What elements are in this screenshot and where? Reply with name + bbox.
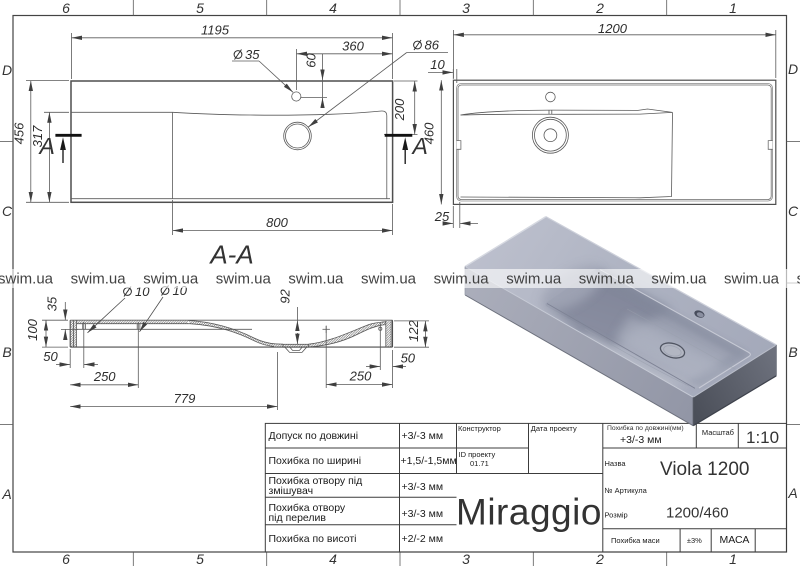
svg-text:Похибка по ширині: Похибка по ширині: [269, 455, 362, 467]
svg-text:122: 122: [406, 319, 421, 341]
svg-text:+2/-2 мм: +2/-2 мм: [402, 533, 444, 545]
svg-text:92: 92: [278, 289, 293, 304]
svg-text:swim.ua: swim.ua: [506, 271, 562, 288]
svg-text:Viola 1200: Viola 1200: [660, 459, 749, 480]
svg-text:A-A: A-A: [208, 240, 253, 270]
svg-text:35: 35: [45, 296, 60, 311]
svg-text:250: 250: [93, 369, 116, 384]
svg-text:2: 2: [595, 551, 604, 566]
svg-text:1: 1: [729, 0, 737, 16]
svg-text:Похибка по довжині(мм): Похибка по довжині(мм): [607, 424, 684, 432]
svg-text:25: 25: [434, 209, 450, 224]
svg-text:1: 1: [729, 551, 737, 566]
svg-text:D: D: [2, 62, 12, 78]
svg-text:86: 86: [425, 38, 440, 53]
svg-text:A: A: [1, 486, 11, 502]
svg-text:6: 6: [62, 551, 70, 566]
svg-text:swim.ua: swim.ua: [143, 271, 199, 288]
svg-text:800: 800: [266, 215, 288, 230]
svg-text:МАСА: МАСА: [720, 534, 750, 546]
svg-text:swim.ua: swim.ua: [71, 271, 127, 288]
svg-text:Похибка маси: Похибка маси: [611, 536, 660, 545]
svg-text:01.71: 01.71: [470, 459, 489, 468]
svg-text:swim.ua: swim.ua: [288, 271, 344, 288]
svg-text:+1,5/-1,5мм: +1,5/-1,5мм: [401, 455, 457, 467]
svg-text:360: 360: [342, 39, 364, 54]
svg-text:B: B: [2, 344, 11, 360]
svg-text:A: A: [38, 133, 55, 159]
svg-text:3: 3: [462, 551, 470, 566]
svg-text:100: 100: [25, 318, 40, 340]
svg-text:5: 5: [196, 0, 204, 16]
svg-text:50: 50: [401, 351, 416, 366]
svg-text:swim.ua: swim.ua: [0, 271, 54, 288]
svg-text:B: B: [788, 344, 797, 360]
svg-text:під перелив: під перелив: [269, 512, 327, 524]
svg-text:456: 456: [12, 122, 27, 144]
svg-text:swim.ua: swim.ua: [797, 271, 800, 288]
svg-text:swim.ua: swim.ua: [216, 271, 272, 288]
svg-text:2: 2: [595, 0, 604, 16]
svg-text:+3/-3 мм: +3/-3 мм: [620, 434, 662, 446]
svg-text:змішувач: змішувач: [269, 485, 314, 497]
svg-text:6: 6: [62, 0, 70, 16]
svg-text:60: 60: [304, 53, 319, 68]
svg-text:ID проекту: ID проекту: [459, 450, 496, 459]
svg-text:460: 460: [422, 122, 437, 144]
svg-text:35: 35: [245, 47, 260, 62]
svg-text:Допуск по довжині: Допуск по довжині: [269, 430, 359, 442]
svg-text:200: 200: [392, 98, 407, 121]
svg-text:swim.ua: swim.ua: [651, 271, 707, 288]
svg-text:swim.ua: swim.ua: [579, 271, 635, 288]
svg-text:10: 10: [430, 57, 445, 72]
svg-text:1200/460: 1200/460: [666, 505, 729, 522]
svg-text:swim.ua: swim.ua: [724, 271, 780, 288]
svg-text:+3/-3 мм: +3/-3 мм: [402, 508, 444, 520]
svg-text:swim.ua: swim.ua: [434, 271, 490, 288]
svg-text:50: 50: [43, 349, 58, 364]
svg-text:4: 4: [329, 551, 337, 566]
svg-text:Похибка по висоті: Похибка по висоті: [269, 533, 357, 545]
svg-text:C: C: [788, 203, 799, 219]
svg-text:Дата проекту: Дата проекту: [531, 424, 577, 433]
svg-text:+3/-3 мм: +3/-3 мм: [402, 481, 444, 493]
svg-text:1200: 1200: [598, 21, 628, 36]
svg-text:5: 5: [196, 551, 204, 566]
svg-text:+3/-3 мм: +3/-3 мм: [402, 430, 444, 442]
svg-text:№ Артикула: № Артикула: [605, 486, 648, 495]
svg-text:Розмір: Розмір: [605, 511, 628, 520]
svg-text:Назва: Назва: [605, 459, 627, 468]
svg-text:D: D: [788, 61, 798, 77]
svg-text:4: 4: [329, 0, 337, 16]
svg-text:C: C: [2, 203, 13, 219]
svg-text:A: A: [787, 485, 797, 501]
svg-text:1:10: 1:10: [746, 428, 779, 447]
svg-text:1195: 1195: [201, 23, 230, 38]
svg-text:swim.ua: swim.ua: [361, 271, 417, 288]
svg-text:3: 3: [462, 0, 470, 16]
svg-text:Масштаб: Масштаб: [702, 428, 734, 437]
svg-text:Конструктор: Конструктор: [458, 424, 501, 433]
svg-text:779: 779: [174, 391, 196, 406]
svg-text:Miraggio: Miraggio: [456, 492, 602, 533]
svg-text:250: 250: [349, 369, 372, 384]
svg-text:±3%: ±3%: [687, 536, 702, 545]
